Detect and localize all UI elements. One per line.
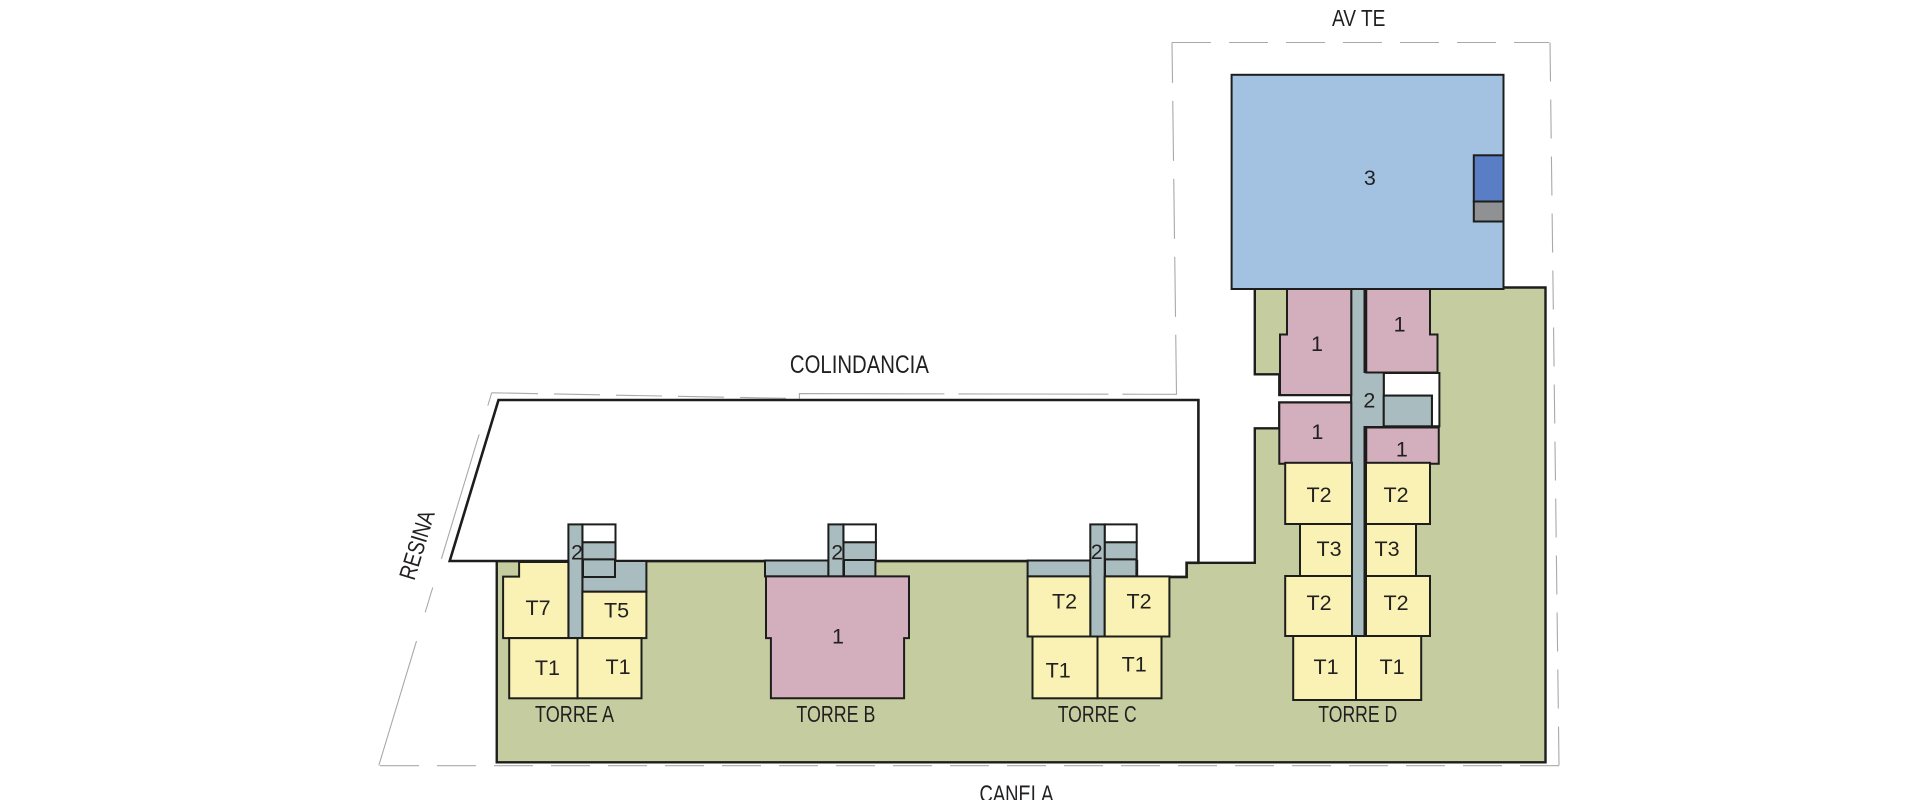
svg-text:1: 1 xyxy=(1311,332,1323,356)
svg-text:TORRE C: TORRE C xyxy=(1058,701,1137,727)
svg-text:T1: T1 xyxy=(606,655,631,679)
svg-text:2: 2 xyxy=(571,540,583,564)
svg-text:AV TE: AV TE xyxy=(1332,5,1386,31)
svg-text:TORRE B: TORRE B xyxy=(796,701,875,727)
svg-text:T1: T1 xyxy=(1313,655,1338,679)
svg-text:CANELA: CANELA xyxy=(980,781,1054,800)
svg-text:T1: T1 xyxy=(1046,659,1071,683)
svg-text:2: 2 xyxy=(1091,540,1103,564)
svg-text:T2: T2 xyxy=(1306,591,1331,615)
svg-text:T3: T3 xyxy=(1374,537,1399,561)
svg-text:T2: T2 xyxy=(1383,483,1408,507)
svg-text:1: 1 xyxy=(1394,312,1406,336)
svg-text:2: 2 xyxy=(1363,389,1375,413)
svg-text:TORRE D: TORRE D xyxy=(1318,701,1397,727)
svg-text:T2: T2 xyxy=(1126,590,1151,614)
svg-text:T2: T2 xyxy=(1052,590,1077,614)
svg-text:1: 1 xyxy=(1396,437,1408,461)
svg-text:T1: T1 xyxy=(1122,652,1147,676)
svg-text:1: 1 xyxy=(832,625,844,649)
svg-text:T1: T1 xyxy=(535,656,560,680)
svg-text:T5: T5 xyxy=(604,599,629,623)
svg-text:T2: T2 xyxy=(1383,591,1408,615)
svg-text:T3: T3 xyxy=(1316,537,1341,561)
svg-text:TORRE A: TORRE A xyxy=(535,701,615,727)
svg-text:T7: T7 xyxy=(525,596,550,620)
svg-text:2: 2 xyxy=(831,541,843,565)
svg-text:T1: T1 xyxy=(1379,655,1404,679)
svg-text:T2: T2 xyxy=(1306,483,1331,507)
svg-text:3: 3 xyxy=(1364,166,1376,190)
svg-text:COLINDANCIA: COLINDANCIA xyxy=(790,351,929,379)
svg-text:1: 1 xyxy=(1311,420,1323,444)
